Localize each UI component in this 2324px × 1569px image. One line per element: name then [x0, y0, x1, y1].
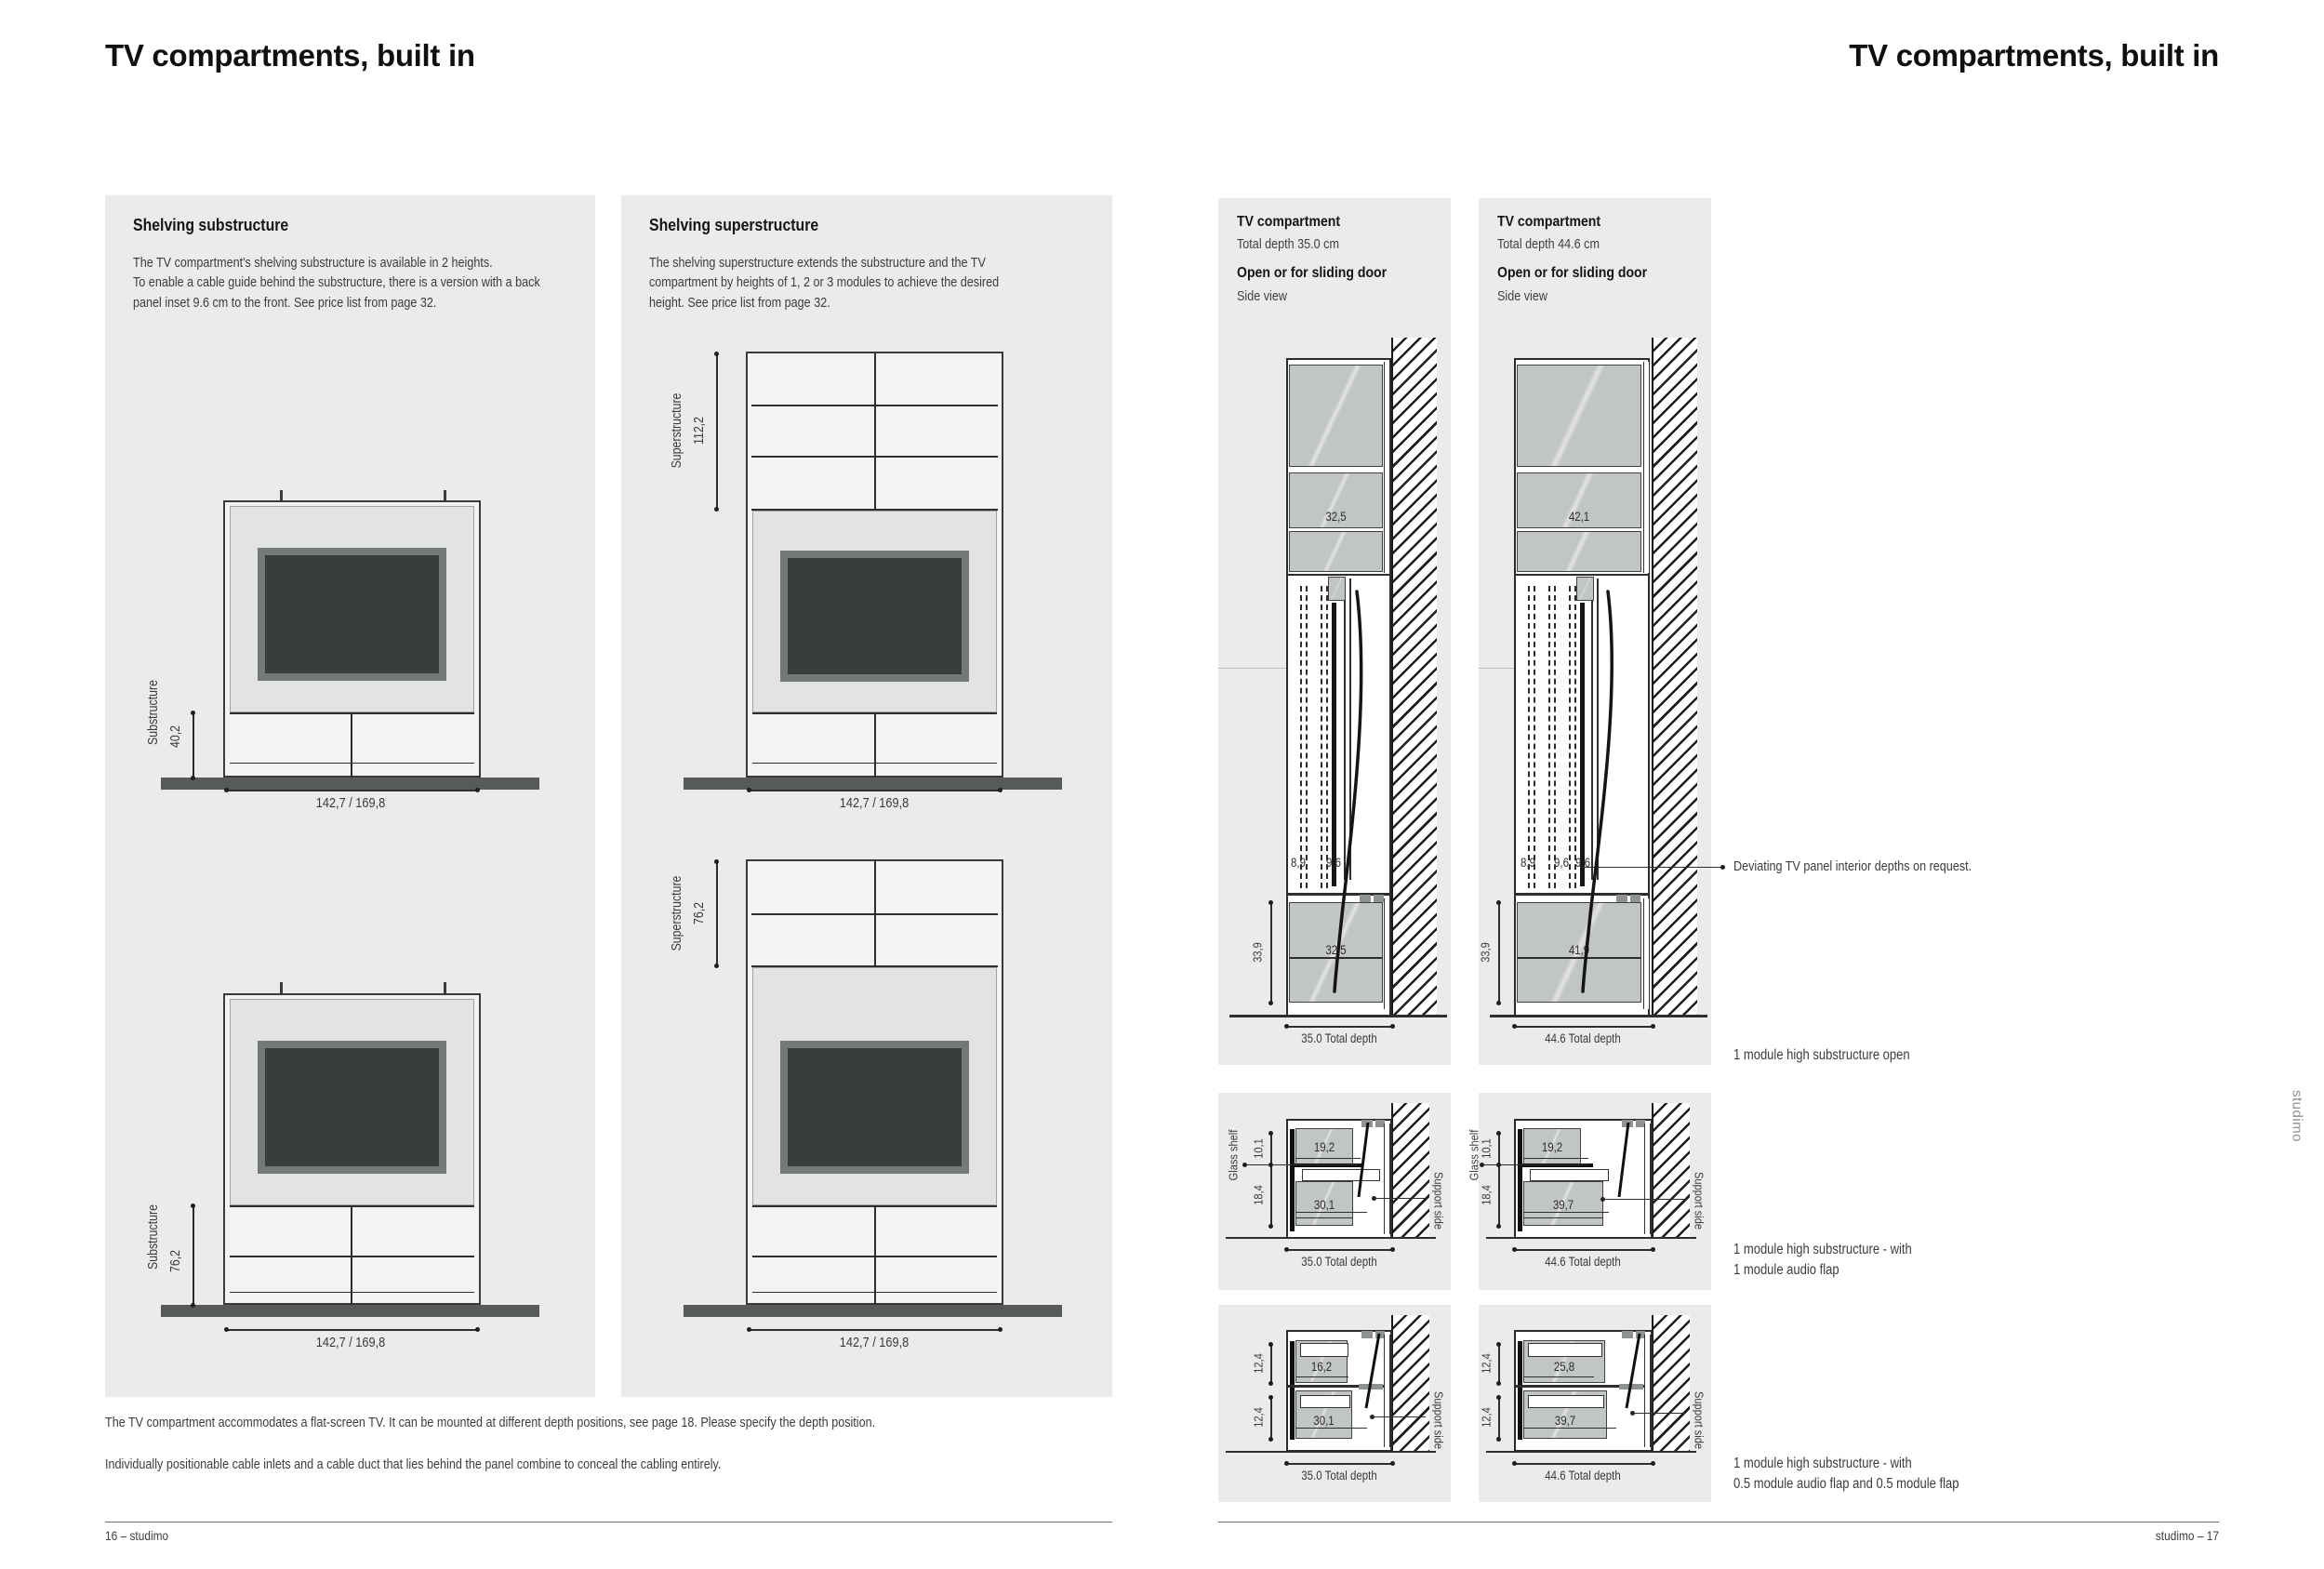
support-leader [1602, 1199, 1686, 1200]
total-depth-dim: 44.6 Total depth [1528, 1255, 1639, 1269]
sliding-door-rail [1384, 1335, 1390, 1447]
superstructure-height-value: 112,2 [692, 417, 707, 445]
dimension-dot [1651, 1024, 1655, 1029]
page-title-left: TV compartments, built in [105, 39, 475, 73]
audio-flap-box [1530, 1169, 1609, 1181]
sliding-door-rail [1643, 898, 1650, 1009]
dimension-dot [191, 1303, 195, 1308]
dimension-dot [1651, 1247, 1655, 1252]
speaker-panel [1518, 1129, 1522, 1231]
floor-line [1486, 1451, 1696, 1453]
dimension-line [1498, 1344, 1500, 1383]
wall-hatch [1391, 1103, 1429, 1239]
upper-depth-dim: 19,2 [1300, 1140, 1349, 1154]
superstructure-label: Superstructure [670, 876, 684, 951]
dimension-line [226, 1329, 477, 1331]
fitting-block [1619, 1384, 1643, 1389]
sv2-total-depth: Total depth 44.6 cm [1497, 236, 1600, 252]
dimension-dot [998, 788, 1003, 792]
dimension-dot [1268, 900, 1273, 905]
dimension-line [749, 790, 1000, 791]
base-divider-line [1518, 957, 1640, 959]
dimension-line [1514, 1463, 1653, 1465]
upper-height-dim: 12,4 [1252, 1353, 1266, 1374]
lower-height-dim: 18,4 [1252, 1185, 1266, 1205]
page-title-right: TV compartments, built in [1849, 39, 2219, 73]
dimension-dot [1496, 1001, 1501, 1005]
dimension-dot [747, 1327, 751, 1332]
shelf-divider [874, 353, 876, 509]
upper-height-dim: 10,1 [1252, 1138, 1266, 1159]
brand-vertical-label: studimo [2290, 1090, 2305, 1142]
shelf-line [230, 1256, 474, 1257]
dimension-dot [1496, 1163, 1501, 1167]
wall-hatch [1391, 1315, 1429, 1453]
dimension-dot [1284, 1024, 1289, 1029]
dimension-line [716, 861, 718, 965]
dimension-dot [1512, 1024, 1517, 1029]
speaker-panel [1290, 1129, 1295, 1231]
fitting-block [1622, 1331, 1633, 1338]
lower-height-dim: 18,4 [1480, 1185, 1494, 1205]
base-height-dim: 33,9 [1479, 942, 1493, 963]
sliding-door-rail [1384, 362, 1390, 573]
base-depth-dim: 41,9 [1526, 943, 1632, 957]
dimension-dot [1651, 1461, 1655, 1466]
dimension-dot [998, 1327, 1003, 1332]
dimension-line [1286, 1463, 1392, 1465]
depth-position-dim: 9,6 [1326, 856, 1342, 870]
dimension-dot [714, 507, 719, 512]
support-side-label: Support side [1432, 1172, 1446, 1230]
dimension-dot [1496, 1131, 1501, 1136]
total-depth-dim: 44.6 Total depth [1528, 1469, 1639, 1483]
tv-screen [265, 555, 439, 673]
shelf-divider [351, 1205, 352, 1305]
lower-height-dim: 12,4 [1480, 1407, 1494, 1428]
lower-height-dim: 12,4 [1252, 1407, 1266, 1428]
caption-substructure-open: 1 module high substructure open [1733, 1045, 1910, 1066]
back-panel-line [1344, 578, 1346, 880]
dimension-line [1514, 1026, 1653, 1028]
footer-rule-left [105, 1522, 1112, 1522]
sliding-door-rail [1643, 362, 1650, 573]
upper-depth-dim: 25,8 [1530, 1360, 1600, 1374]
dimension-dot [714, 859, 719, 864]
upper-depth-dim: 42,1 [1526, 510, 1632, 524]
dimension-dot [747, 788, 751, 792]
audio-flap-box [1528, 1343, 1602, 1357]
dimension-dot [1268, 1224, 1273, 1229]
tv-position-dashed-line [1321, 586, 1322, 888]
tv-position-dashed-line [1534, 586, 1535, 888]
fitting-block [1360, 895, 1371, 902]
floor-bar [161, 1305, 539, 1317]
upper-height-dim: 12,4 [1480, 1353, 1494, 1374]
callout-dot [1720, 865, 1725, 870]
support-side-label: Support side [1693, 1172, 1706, 1230]
dimension-dot [1268, 1163, 1273, 1167]
depth-dim-line [1295, 1376, 1348, 1377]
dimension-line [1270, 1397, 1272, 1439]
dimension-line [1270, 902, 1272, 1003]
fitting-block [1361, 1120, 1373, 1127]
upper-depth-dim: 16,2 [1299, 1360, 1344, 1374]
dimension-line [193, 712, 194, 778]
dimension-dot [475, 1327, 480, 1332]
dimension-line [1286, 1249, 1392, 1251]
substructure-label: Substructure [146, 680, 161, 745]
superstructure-body: The shelving superstructure extends the … [649, 253, 1118, 312]
shelf-divider [874, 1205, 876, 1305]
callout-deviating-depths: Deviating TV panel interior depths on re… [1733, 858, 1972, 874]
back-panel-line [1349, 578, 1351, 880]
shelf-line [1296, 1217, 1352, 1218]
sv2-view: Side view [1497, 288, 1547, 304]
floor-bar [161, 778, 539, 790]
substructure-label: Substructure [146, 1204, 161, 1270]
dimension-dot [1268, 1342, 1273, 1347]
dimension-line [193, 1205, 194, 1305]
dimension-line [1270, 1133, 1272, 1164]
tv-position-dashed-line [1569, 586, 1571, 888]
dimension-dot [714, 964, 719, 968]
leader-dot [1242, 1163, 1247, 1167]
wall-hatch [1652, 338, 1697, 1017]
dimension-dot [191, 1203, 195, 1208]
dimension-line [1514, 1249, 1653, 1251]
audio-flap-box [1300, 1343, 1348, 1357]
total-depth-dim: 35.0 Total depth [1284, 1031, 1395, 1045]
back-panel-line [1591, 578, 1593, 880]
shelf-line [230, 1292, 474, 1293]
sliding-door-rail [1384, 1124, 1390, 1234]
fitting-block [1359, 1384, 1383, 1389]
support-leader [1374, 1198, 1426, 1199]
sliding-door-rail [1644, 1124, 1651, 1234]
cabinet-bottom-line [1514, 574, 1650, 576]
fitting-block [1622, 1120, 1633, 1127]
width-dimension: 142,7 / 169,8 [272, 1335, 430, 1350]
base-depth-dim: 32,5 [1296, 943, 1376, 957]
floor-bar [684, 1305, 1062, 1317]
dimension-dot [1268, 1131, 1273, 1136]
dimension-dot [1268, 1395, 1273, 1400]
glass-shelf-label: Glass shelf [1227, 1130, 1241, 1181]
dimension-dot [191, 776, 195, 780]
wall-hatch [1652, 1315, 1690, 1453]
dimension-dot [714, 352, 719, 356]
floor-line [1486, 1237, 1696, 1239]
dimension-dot [1496, 900, 1501, 905]
sv2-title: TV compartment [1497, 214, 1600, 231]
tv-position-dashed-line [1574, 586, 1576, 888]
depth-dim-line [1523, 1212, 1609, 1213]
depth-dim-line [1295, 1212, 1367, 1213]
dimension-dot [1268, 1437, 1273, 1442]
depth-position-dim: 8,9 [1521, 856, 1536, 870]
fitting-block [1630, 895, 1640, 902]
audio-flap-box [1302, 1169, 1380, 1181]
audio-flap-box [1528, 1395, 1604, 1408]
lower-depth-dim: 39,7 [1529, 1198, 1597, 1212]
superstructure-heading: Shelving superstructure [649, 216, 818, 235]
sliding-door-rail [1384, 898, 1390, 1009]
dimension-dot [1390, 1247, 1395, 1252]
audio-flap-box [1300, 1395, 1350, 1408]
callout-leader-line [1581, 867, 1722, 868]
cable-guide-tab [280, 982, 283, 993]
tv-position-dashed-line [1554, 586, 1556, 888]
floor-line [1490, 1015, 1707, 1017]
wall-hatch [1652, 1103, 1690, 1239]
cable-guide-tab [444, 982, 446, 993]
upper-compartment [1289, 531, 1383, 572]
shelf-line [230, 763, 474, 764]
substructure-height-value: 76,2 [168, 1250, 183, 1272]
floor-bar [684, 778, 1062, 790]
dimension-line [749, 1329, 1000, 1331]
tv-panel-side [1332, 603, 1336, 886]
total-depth-dim: 35.0 Total depth [1284, 1255, 1395, 1269]
dimension-line [1270, 1344, 1272, 1383]
depth-dim-line [1523, 1428, 1616, 1429]
dimension-dot [1268, 1001, 1273, 1005]
dimension-dot [1390, 1461, 1395, 1466]
total-depth-dim: 35.0 Total depth [1284, 1469, 1395, 1483]
fitting-block [1616, 895, 1627, 902]
width-dimension: 142,7 / 169,8 [795, 1335, 953, 1350]
support-leader [1372, 1416, 1426, 1417]
sv2-mode: Open or for sliding door [1497, 265, 1647, 282]
footer-page-left: 16 – studimo [105, 1528, 168, 1543]
shelf-line [1524, 1217, 1602, 1218]
sv1-view: Side view [1237, 288, 1287, 304]
back-panel-line [1597, 578, 1599, 880]
depth-dim-line [1295, 1428, 1367, 1429]
dimension-dot [191, 711, 195, 715]
dimension-dot [1496, 1437, 1501, 1442]
depth-position-dim: 8,9 [1291, 856, 1307, 870]
dimension-line [1498, 902, 1500, 1003]
support-leader [1632, 1413, 1686, 1414]
footer-page-right: studimo – 17 [1982, 1528, 2219, 1543]
shelf-line [230, 712, 474, 714]
fitting-block [1361, 1331, 1373, 1338]
sv1-title: TV compartment [1237, 214, 1340, 231]
tv-panel-side [1580, 603, 1585, 886]
tv-position-dashed-line [1326, 586, 1328, 888]
dimension-dot [224, 1327, 229, 1332]
dimension-dot [1496, 1381, 1501, 1386]
dimension-dot [1512, 1461, 1517, 1466]
catalog-spread: TV compartments, built in TV compartment… [0, 0, 2324, 1569]
upper-depth-dim: 32,5 [1296, 510, 1376, 524]
substructure-heading: Shelving substructure [133, 216, 288, 235]
tv-screen [788, 1048, 962, 1166]
superstructure-label: Superstructure [670, 393, 684, 469]
dimension-dot [1284, 1461, 1289, 1466]
floor-line [1226, 1451, 1436, 1453]
dimension-line [1498, 1397, 1500, 1439]
sliding-door-rail [1644, 1335, 1651, 1447]
tv-position-dashed-line [1528, 586, 1530, 888]
speaker-panel [1518, 1341, 1522, 1440]
depth-dim-line [1523, 1158, 1588, 1159]
dimension-dot [1496, 1224, 1501, 1229]
sv1-mode: Open or for sliding door [1237, 265, 1387, 282]
note-cable-concealment: Individually positionable cable inlets a… [105, 1456, 721, 1472]
wall-hatch [1391, 338, 1437, 1017]
tv-position-dashed-line [1300, 586, 1302, 888]
base-divider-line [1290, 957, 1382, 959]
substructure-height-value: 40,2 [168, 725, 183, 748]
caption-half-flaps: 1 module high substructure - with 0.5 mo… [1733, 1454, 1959, 1496]
shelf-line [230, 1205, 474, 1207]
floor-line [1229, 1015, 1447, 1017]
lower-depth-dim: 30,1 [1300, 1414, 1348, 1428]
sv1-total-depth: Total depth 35.0 cm [1237, 236, 1339, 252]
tv-position-dashed-line [1548, 586, 1550, 888]
dimension-line [1498, 1133, 1500, 1164]
glass-shelf-leader [1244, 1164, 1360, 1165]
lower-depth-dim: 30,1 [1300, 1198, 1349, 1212]
base-height-dim: 33,9 [1251, 942, 1265, 963]
upper-compartment [1517, 531, 1641, 572]
dimension-line [1286, 1026, 1392, 1028]
note-depth-positions: The TV compartment accommodates a flat-s… [105, 1415, 875, 1430]
support-side-label: Support side [1693, 1391, 1706, 1449]
lower-depth-dim: 39,7 [1530, 1414, 1601, 1428]
cabinet-bottom-line [1286, 574, 1391, 576]
dimension-line [1498, 1164, 1500, 1226]
superstructure-height-value: 76,2 [692, 902, 707, 924]
total-depth-dim: 44.6 Total depth [1528, 1031, 1639, 1045]
tv-mount-bracket [1328, 577, 1346, 601]
caption-audio-flap: 1 module high substructure - with 1 modu… [1733, 1240, 1912, 1282]
fitting-block [1374, 895, 1384, 902]
dimension-dot [1390, 1024, 1395, 1029]
upper-compartment [1517, 365, 1641, 467]
tv-position-dashed-line [1306, 586, 1308, 888]
dimension-dot [1512, 1247, 1517, 1252]
shelf-divider [874, 712, 876, 778]
dimension-dot [1284, 1247, 1289, 1252]
tv-mount-bracket [1576, 577, 1594, 601]
support-side-label: Support side [1432, 1391, 1446, 1449]
depth-dim-line [1295, 1158, 1361, 1159]
tv-screen [265, 1048, 439, 1166]
width-dimension: 142,7 / 169,8 [795, 795, 953, 811]
upper-compartment [1289, 365, 1383, 467]
upper-depth-dim: 19,2 [1528, 1140, 1577, 1154]
dimension-dot [1268, 1381, 1273, 1386]
upper-height-dim: 10,1 [1480, 1138, 1494, 1159]
speaker-panel [1290, 1341, 1295, 1440]
shelf-divider [351, 712, 352, 778]
dimension-dot [475, 788, 480, 792]
dimension-line [226, 790, 477, 791]
dimension-dot [1496, 1342, 1501, 1347]
dimension-dot [224, 788, 229, 792]
footer-rule-right [1218, 1522, 2219, 1522]
substructure-body: The TV compartment's shelving substructu… [133, 253, 602, 312]
dimension-line [1270, 1164, 1272, 1226]
dimension-line [716, 353, 718, 509]
dimension-dot [1496, 1395, 1501, 1400]
tv-screen [788, 558, 962, 674]
floor-line [1226, 1237, 1436, 1239]
depth-dim-line [1523, 1376, 1594, 1377]
depth-position-dim: 9,6 [1554, 856, 1570, 870]
shelf-divider [874, 861, 876, 965]
width-dimension: 142,7 / 169,8 [272, 795, 430, 811]
